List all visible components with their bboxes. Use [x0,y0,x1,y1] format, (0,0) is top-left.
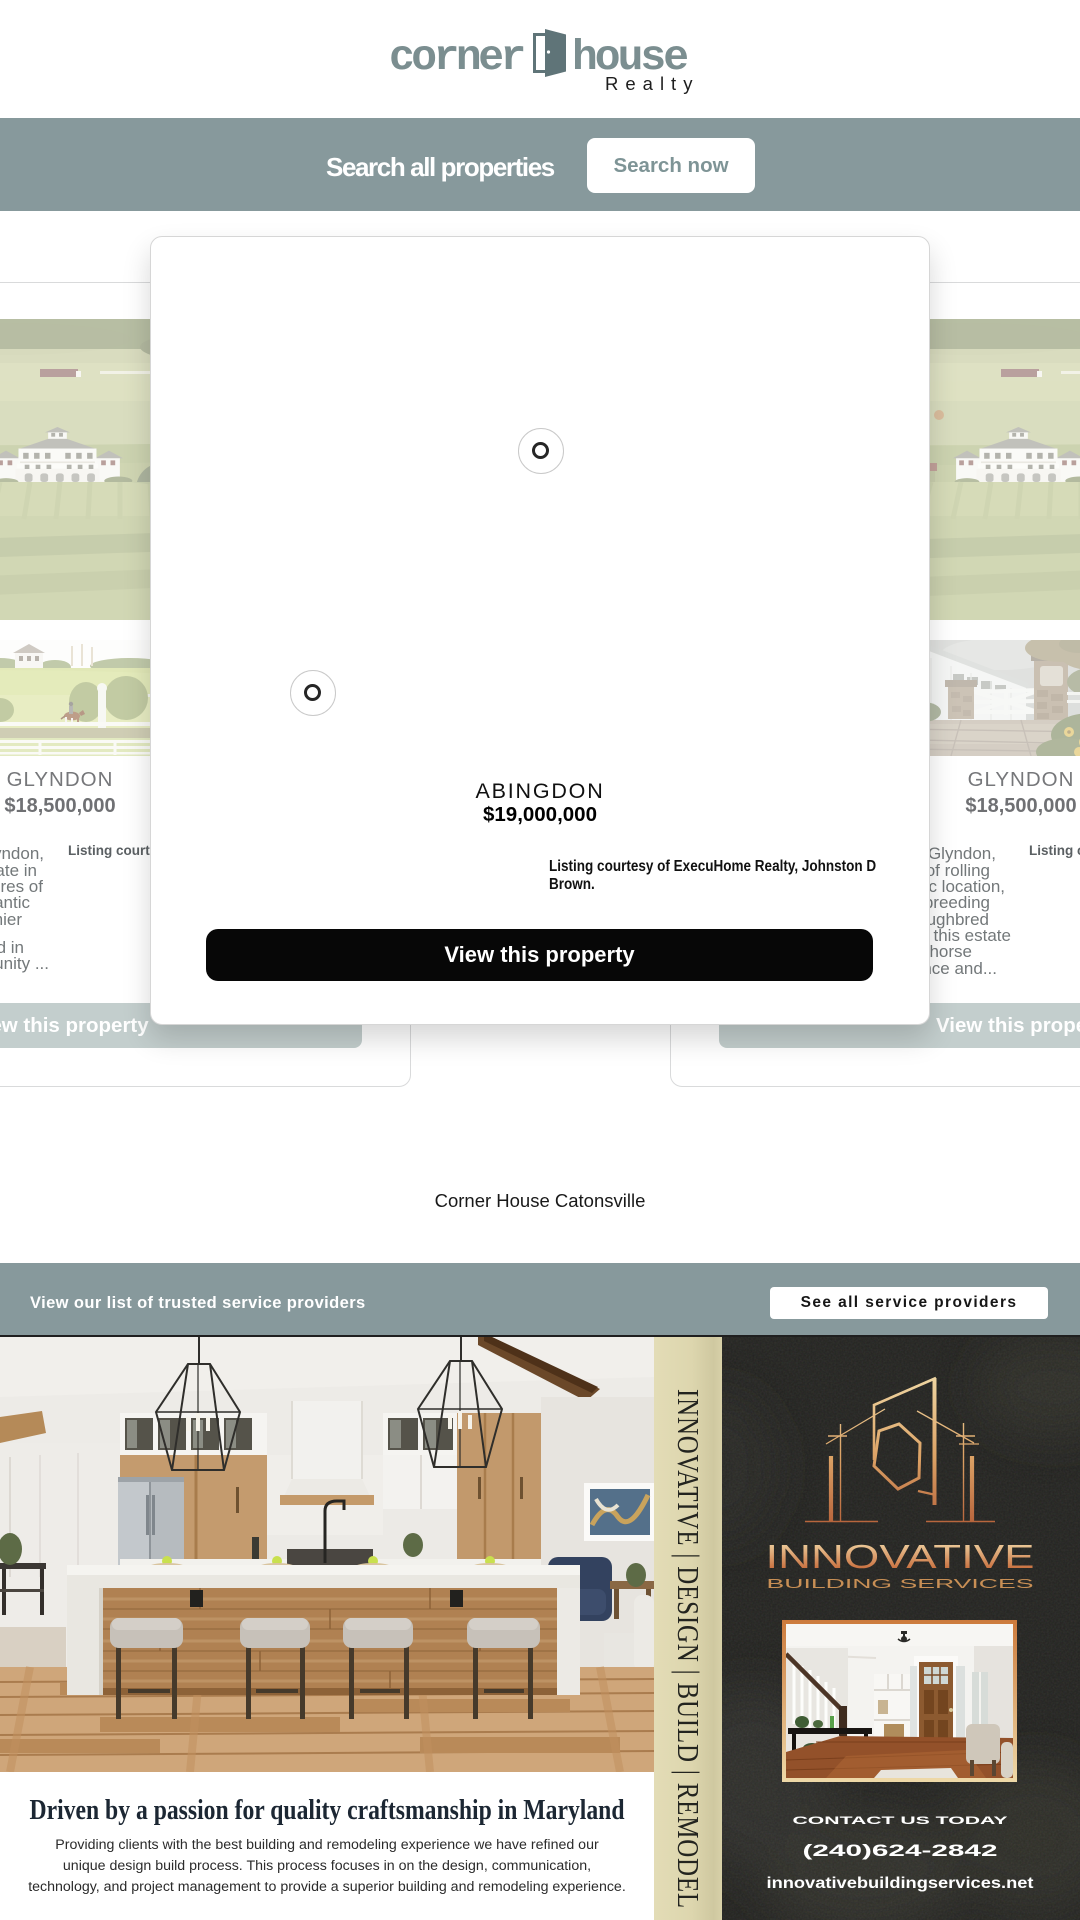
svg-text:(240)624-2842: (240)624-2842 [803,1841,998,1860]
svg-text:CONTACT US TODAY: CONTACT US TODAY [793,1815,1009,1827]
svg-text:BUILDING SERVICES: BUILDING SERVICES [767,1577,1034,1591]
svg-text:Driven by a passion for qualit: Driven by a passion for quality craftsma… [30,1794,625,1826]
svg-text:INNOVATIVE | DESIGN | BUILD |: INNOVATIVE | DESIGN | BUILD | REMODEL [671,1389,706,1909]
svg-text:innovativebuildingservices.net: innovativebuildingservices.net [767,1875,1034,1892]
svg-text:INNOVATIVE: INNOVATIVE [766,1538,1035,1575]
